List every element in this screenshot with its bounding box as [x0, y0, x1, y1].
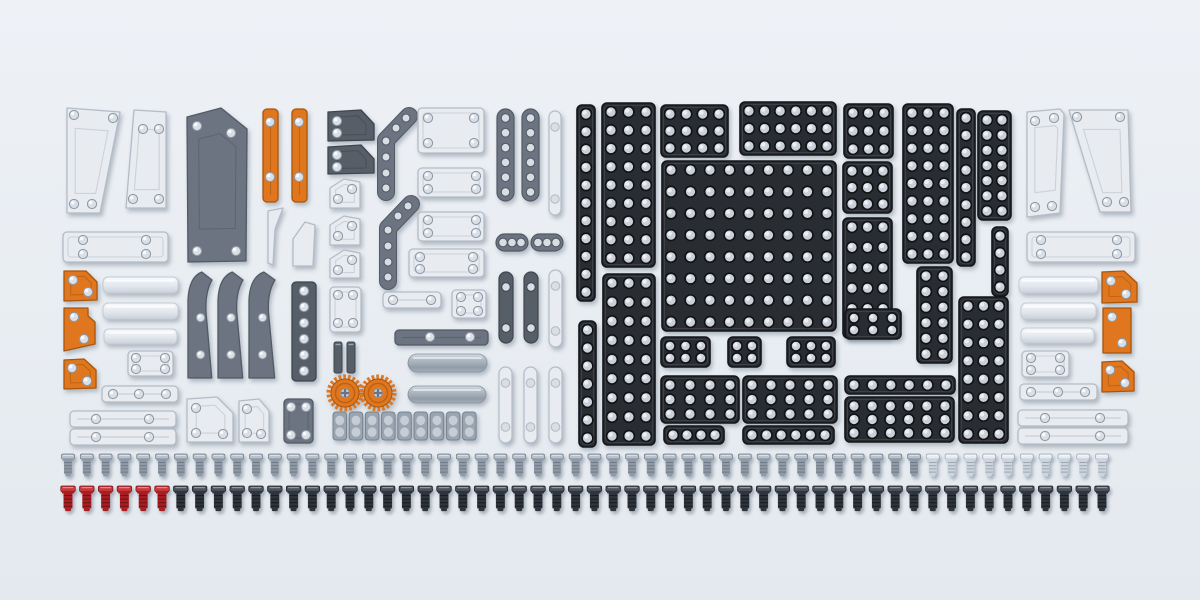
plate-black-i [903, 104, 953, 263]
beam-gray-6h-2 [522, 109, 539, 201]
screw-silver [250, 454, 263, 476]
bracket-orange-r2 [1103, 308, 1131, 353]
screw-dark [512, 486, 527, 511]
strip-black-mid [579, 321, 596, 447]
screw-silver [513, 454, 526, 476]
screw-dark [550, 486, 565, 511]
screw-silver [494, 454, 507, 476]
beam-dark-6riv [292, 282, 316, 381]
plate-penta-light-1 [187, 397, 233, 442]
screw-silver [156, 454, 169, 476]
screw-dark [926, 486, 941, 511]
plate-light-small-r [1022, 351, 1069, 377]
screw-red [155, 486, 170, 511]
screw-dark [418, 486, 433, 511]
screw-row-top [62, 454, 1109, 476]
screw-silver [720, 454, 733, 476]
plate-light-1 [418, 108, 484, 153]
screw-silver [626, 454, 639, 476]
screw-dark [606, 486, 621, 511]
screw-dark [343, 486, 358, 511]
screw-bright [1096, 454, 1109, 476]
screw-silver [607, 454, 620, 476]
screw-dark [380, 486, 395, 511]
bracket-dark-2 [328, 145, 374, 174]
screw-bright [1039, 454, 1052, 476]
pin-1 [334, 342, 342, 373]
screw-dark [756, 486, 771, 511]
beam-dark-riveted-mid [395, 330, 488, 345]
screw-red [80, 486, 95, 511]
screw-silver [99, 454, 112, 476]
screw-silver [776, 454, 789, 476]
screw-silver [795, 454, 808, 476]
screw-dark [286, 486, 301, 511]
beam-orange-2 [292, 109, 307, 202]
plate-black-p [728, 337, 761, 367]
bar-light-l1 [103, 277, 178, 293]
tube-1 [408, 354, 487, 372]
plate-black-x [845, 397, 954, 442]
screw-dark [474, 486, 489, 511]
plate-black-r [845, 309, 901, 339]
strip-black-j [957, 109, 975, 266]
bracket-orange-r3 [1102, 361, 1134, 392]
screw-dark [888, 486, 903, 511]
screw-dark [982, 486, 997, 511]
screw-dark [1020, 486, 1035, 511]
screw-silver [532, 454, 545, 476]
screw-bright [926, 454, 939, 476]
plate-black-d [740, 102, 836, 155]
screw-dark [568, 486, 583, 511]
screw-bright [1020, 454, 1033, 476]
plate-black-n [959, 297, 1008, 443]
bar-light-r1 [1019, 277, 1098, 293]
angle-white-2 [293, 222, 315, 266]
beam-light-3riv-l [102, 386, 178, 402]
plate-trapezoid-right-1 [1027, 109, 1064, 217]
beam-light-long-l1 [70, 411, 176, 427]
screw-dark [362, 486, 377, 511]
tube-2 [408, 386, 486, 403]
beam-gray-2h-1 [499, 272, 513, 343]
plate-black-m [917, 267, 952, 363]
bar-light-r2 [1021, 303, 1096, 319]
screw-red [117, 486, 132, 511]
plate-light-vert-small [330, 287, 361, 332]
screw-dark [662, 486, 677, 511]
strip-black-u [664, 426, 724, 444]
screw-dark [1095, 486, 1110, 511]
screw-dark [174, 486, 189, 511]
screw-bright [964, 454, 977, 476]
pin-2 [347, 342, 355, 373]
screw-silver [889, 454, 902, 476]
screw-dark [399, 486, 414, 511]
screw-dark [324, 486, 339, 511]
screw-silver [62, 454, 75, 476]
plate-black-a [602, 103, 655, 267]
beam-light-long-r1 [1018, 410, 1128, 426]
screw-silver [362, 454, 375, 476]
screw-dark [1076, 486, 1091, 511]
screw-dark [531, 486, 546, 511]
plate-trapezoid-right-2 [1069, 110, 1131, 212]
beam-gray-6h-1 [497, 109, 514, 201]
plate-light-small-mid [452, 290, 486, 318]
screw-silver [757, 454, 770, 476]
screw-dark [738, 486, 753, 511]
bracket-light-1 [330, 179, 360, 208]
bracket-light-2 [330, 216, 360, 245]
screw-silver [475, 454, 488, 476]
screw-dark [230, 486, 245, 511]
plate-trapezoid-dark [187, 108, 247, 262]
screw-dark [456, 486, 471, 511]
screw-silver [118, 454, 131, 476]
screw-dark [832, 486, 847, 511]
plate-long-right [1027, 232, 1135, 262]
strip-black-v [743, 426, 834, 444]
screw-silver [814, 454, 827, 476]
link-3h-2 [531, 234, 563, 251]
bracket-light-3 [330, 250, 360, 278]
beam-light-2h-mid [549, 270, 562, 347]
screw-silver [569, 454, 582, 476]
plate-long-left [63, 232, 168, 262]
screw-dark [775, 486, 790, 511]
screw-silver [832, 454, 845, 476]
bracket-orange-l1 [64, 271, 97, 301]
plate-black-e [662, 161, 836, 331]
screw-bright [945, 454, 958, 476]
beam-light-2h-b3 [549, 367, 562, 443]
screw-dark [1057, 486, 1072, 511]
screw-dark [587, 486, 602, 511]
screw-dark [268, 486, 283, 511]
screw-dark [963, 486, 978, 511]
screw-silver [851, 454, 864, 476]
bar-light-l3 [104, 329, 177, 344]
screw-silver [663, 454, 676, 476]
beam-bent-1 [382, 114, 410, 192]
beam-light-2h-b2 [524, 367, 537, 443]
screw-dark [681, 486, 696, 511]
gear-2 [362, 377, 394, 409]
screw-dark [192, 486, 207, 511]
beam-light-2 [418, 212, 484, 241]
beam-bent-2 [384, 202, 412, 281]
blade-3 [249, 272, 275, 378]
blade-2 [218, 272, 243, 378]
screw-silver [550, 454, 563, 476]
beam-orange-1 [263, 109, 278, 202]
beam-gray-2h-2 [524, 272, 538, 343]
bracket-orange-l2 [64, 308, 95, 351]
screw-bright [1058, 454, 1071, 476]
angle-white-1 [268, 208, 283, 265]
screw-silver [908, 454, 921, 476]
bracket-orange-l3 [64, 359, 96, 389]
plate-light-small-l [128, 351, 173, 376]
plate-black-b [603, 274, 655, 445]
knolling-photo [0, 0, 1200, 600]
bracket-dark-1 [328, 110, 374, 141]
screw-silver [456, 454, 469, 476]
link-3h-1 [496, 234, 528, 251]
screw-silver [381, 454, 394, 476]
screw-silver [193, 454, 206, 476]
screw-dark [644, 486, 659, 511]
screw-dark [700, 486, 715, 511]
gear-1 [329, 377, 361, 409]
screw-red [61, 486, 76, 511]
screw-dark [211, 486, 226, 511]
beam-light-long-l2 [70, 429, 176, 445]
beam-light-riveted-mid [383, 292, 441, 308]
plate-black-q [787, 337, 835, 367]
screw-bright [1077, 454, 1090, 476]
parts-canvas [0, 0, 1200, 600]
plate-black-c [661, 105, 728, 157]
bar-light-r3 [1021, 328, 1094, 343]
screw-silver [588, 454, 601, 476]
screw-silver [287, 454, 300, 476]
beam-light-long-r2 [1018, 428, 1128, 444]
plate-black-t [743, 376, 837, 423]
bracket-orange-r1 [1102, 271, 1137, 303]
screw-dark [794, 486, 809, 511]
screw-silver [644, 454, 657, 476]
blade-1 [188, 272, 212, 378]
screw-dark [944, 486, 959, 511]
screw-silver [212, 454, 225, 476]
screw-silver [137, 454, 150, 476]
screw-dark [907, 486, 922, 511]
screw-silver [701, 454, 714, 476]
strip-black-l [992, 227, 1008, 296]
plate-black-g [843, 162, 892, 213]
screw-silver [344, 454, 357, 476]
screw-dark [850, 486, 865, 511]
screw-bright [1002, 454, 1015, 476]
screw-dark [249, 486, 264, 511]
screw-silver [325, 454, 338, 476]
beam-light-1 [418, 168, 484, 197]
screw-silver [80, 454, 93, 476]
screw-dark [1001, 486, 1016, 511]
plate-trapezoid-left-1 [67, 108, 120, 213]
plate-black-f [844, 104, 893, 158]
screw-silver [400, 454, 413, 476]
screw-silver [438, 454, 451, 476]
screw-dark [493, 486, 508, 511]
bar-light-l2 [103, 303, 178, 319]
screw-dark [437, 486, 452, 511]
beam-light-2h-b1 [499, 367, 512, 443]
screw-silver [870, 454, 883, 476]
beam-light-3 [409, 249, 484, 277]
screw-row-bottom [61, 486, 1110, 511]
connector-blocks [333, 412, 476, 440]
plate-black-k [978, 111, 1011, 220]
screw-silver [738, 454, 751, 476]
screw-dark [719, 486, 734, 511]
screw-silver [306, 454, 319, 476]
plate-black-o [661, 337, 710, 367]
screw-dark [813, 486, 828, 511]
screw-dark [625, 486, 640, 511]
plate-trapezoid-left-2 [126, 110, 166, 208]
screw-bright [983, 454, 996, 476]
screw-silver [231, 454, 244, 476]
strip-black-tall [577, 105, 595, 301]
plate-black-s [661, 376, 739, 423]
strip-black-w [845, 376, 955, 394]
screw-silver [682, 454, 695, 476]
screw-silver [419, 454, 432, 476]
screw-dark [1038, 486, 1053, 511]
plate-penta-light-2 [239, 399, 269, 442]
screw-dark [869, 486, 884, 511]
screw-red [136, 486, 151, 511]
screw-red [98, 486, 113, 511]
screw-silver [174, 454, 187, 476]
plate-dark-small [284, 399, 313, 443]
beam-light-3riv-r [1020, 384, 1097, 400]
beam-light-2h-tall [549, 111, 561, 215]
screw-dark [305, 486, 320, 511]
screw-silver [268, 454, 281, 476]
